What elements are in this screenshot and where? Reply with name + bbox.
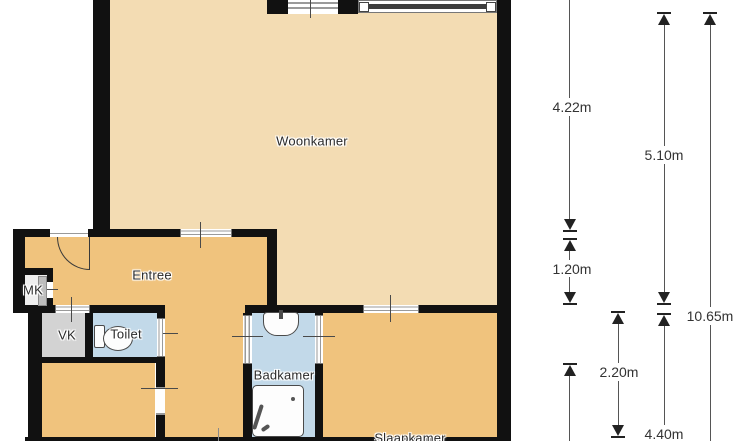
- door-opening: [363, 305, 419, 313]
- window-sash: [361, 4, 494, 9]
- dimension-line: [710, 25, 711, 307]
- wall: [267, 237, 277, 313]
- wall: [267, 0, 288, 14]
- dimension-label: 4.22m: [550, 98, 595, 116]
- wall: [338, 0, 358, 14]
- window-icon: [358, 0, 497, 13]
- wall: [25, 305, 165, 313]
- door-marker: [141, 388, 178, 389]
- dimension-line: [569, 277, 570, 292]
- wall: [85, 313, 93, 357]
- door-jamb-line: [50, 233, 88, 234]
- dimension-line: [569, 0, 570, 99]
- window-icon: [288, 0, 338, 14]
- dimension-arrow-icon: [658, 315, 670, 326]
- door-opening: [47, 282, 53, 298]
- door-leaf: [89, 237, 91, 270]
- dimension-line: [710, 325, 711, 441]
- room-label-woonkamer: Woonkamer: [276, 134, 348, 149]
- door-marker: [390, 295, 391, 322]
- dimension-arrow-icon: [658, 292, 670, 303]
- dimension-arrow-icon: [564, 365, 576, 376]
- wall: [497, 0, 511, 441]
- door-marker: [71, 297, 72, 322]
- dimension-line: [664, 164, 665, 292]
- dimension-arrow-icon: [612, 313, 624, 324]
- dimension-line: [569, 116, 570, 219]
- dimension-arrow-icon: [564, 219, 576, 230]
- dimension-label: 5.10m: [642, 146, 687, 164]
- door-opening: [156, 387, 165, 415]
- sink-tap-icon: [279, 310, 283, 319]
- dimension-line: [569, 376, 570, 441]
- dimension-endbar: [563, 303, 577, 305]
- door-marker: [200, 222, 201, 248]
- room-label-badkamer: Badkamer: [254, 368, 315, 383]
- room-label-vk: VK: [58, 328, 76, 343]
- door-opening: [157, 318, 165, 357]
- dimension-endbar: [611, 436, 625, 438]
- floor-plan: Woonkamer Entree MK VK Toilet Badkamer S…: [0, 0, 750, 441]
- wall: [417, 305, 497, 313]
- window-end-post: [359, 2, 369, 12]
- room-slaapkamer: [323, 313, 497, 441]
- shower-drain-icon: [291, 397, 295, 401]
- window-end-post: [486, 2, 496, 12]
- door-marker: [232, 336, 263, 337]
- dimension-line: [664, 326, 665, 426]
- wall: [93, 0, 110, 237]
- dimension-line: [664, 25, 665, 147]
- wall: [88, 229, 180, 237]
- door-opening: [315, 315, 323, 364]
- dimension-endbar: [563, 230, 577, 232]
- room-label-toilet: Toilet: [110, 327, 142, 342]
- dimension-label: 1.20m: [550, 260, 595, 278]
- dimension-label: 2.20m: [597, 363, 642, 381]
- room-bottom-left: [42, 363, 155, 441]
- dimension-arrow-icon: [704, 14, 716, 25]
- dimension-arrow-icon: [564, 292, 576, 303]
- dimension-label: 10.65m: [684, 307, 737, 325]
- wall: [28, 357, 165, 363]
- wall: [28, 308, 42, 441]
- dimension-arrow-icon: [564, 240, 576, 251]
- door-opening: [243, 315, 252, 364]
- door-marker: [163, 333, 178, 334]
- door-marker: [218, 428, 219, 441]
- dimension-label: 4.40m: [642, 425, 687, 441]
- dimension-arrow-icon: [658, 14, 670, 25]
- wall: [230, 229, 277, 237]
- room-label-entree: Entree: [132, 268, 172, 283]
- dimension-line: [618, 324, 619, 364]
- dimension-endbar: [657, 303, 671, 305]
- dimension-arrow-icon: [612, 425, 624, 436]
- door-opening: [55, 305, 90, 313]
- room-label-mk: MK: [23, 283, 43, 298]
- room-label-slaapkamer: Slaapkamer: [374, 431, 445, 441]
- door-marker: [303, 336, 335, 337]
- dimension-line: [618, 381, 619, 425]
- window-marker: [310, 0, 311, 18]
- wall: [245, 305, 363, 313]
- door-opening: [180, 229, 232, 237]
